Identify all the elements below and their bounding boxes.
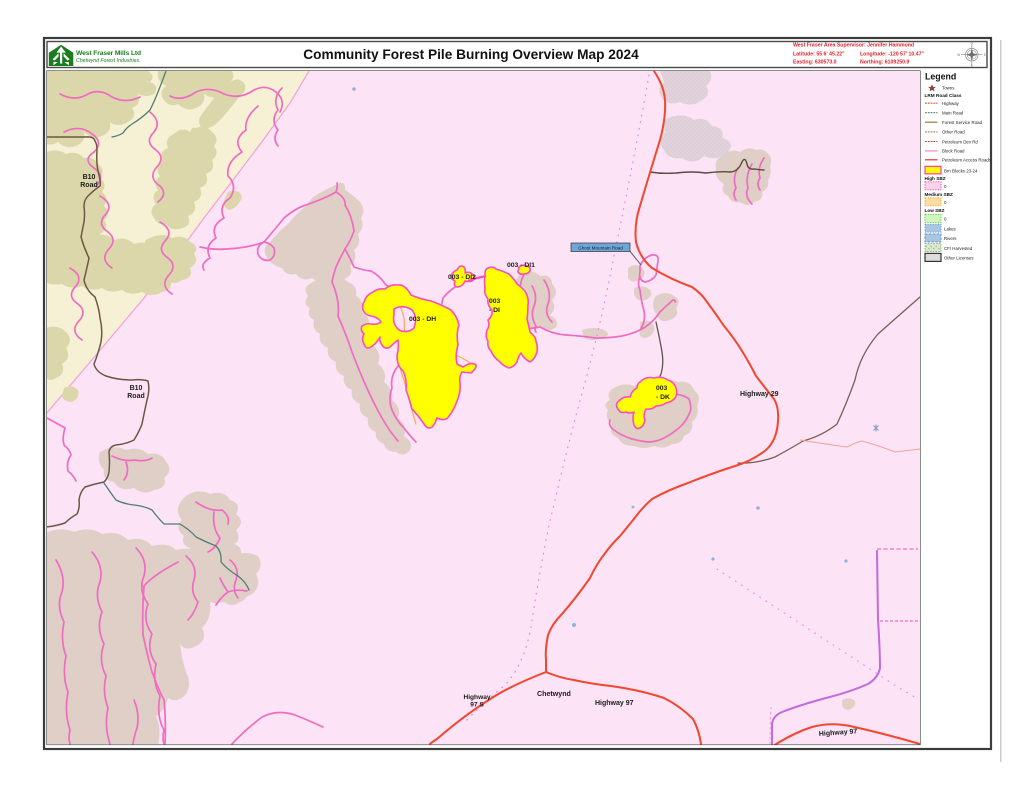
svg-text:Forest Service Road: Forest Service Road bbox=[942, 120, 983, 125]
svg-text:97 S: 97 S bbox=[470, 702, 484, 709]
svg-text:Highway: Highway bbox=[942, 101, 960, 106]
svg-text:Northing: 6109250.9: Northing: 6109250.9 bbox=[860, 59, 909, 65]
svg-text:Rivers: Rivers bbox=[944, 236, 957, 241]
svg-text:Chetwynd: Chetwynd bbox=[537, 690, 571, 698]
svg-text:003 - DI2: 003 - DI2 bbox=[448, 274, 476, 281]
svg-text:Main Road: Main Road bbox=[942, 111, 964, 116]
svg-text:Road: Road bbox=[80, 182, 98, 189]
svg-text:W: W bbox=[957, 53, 960, 57]
svg-text:Medium SBZ: Medium SBZ bbox=[925, 192, 954, 197]
svg-text:CFI Harvested: CFI Harvested bbox=[944, 246, 973, 251]
svg-text:003 - DH: 003 - DH bbox=[409, 316, 436, 323]
svg-text:S: S bbox=[971, 64, 973, 68]
svg-text:West Fraser Area Supervisor: J: West Fraser Area Supervisor: Jennifer Ha… bbox=[793, 42, 914, 48]
svg-text:High SBZ: High SBZ bbox=[925, 176, 946, 181]
svg-text:Easting: 630573.0: Easting: 630573.0 bbox=[793, 59, 837, 65]
svg-text:Chetwynd Forest Industries.: Chetwynd Forest Industries. bbox=[76, 58, 141, 64]
svg-text:Block Road: Block Road bbox=[942, 149, 965, 154]
svg-text:Legend: Legend bbox=[925, 72, 956, 82]
svg-text:Latitude: 55 6' 45.22": Latitude: 55 6' 45.22" bbox=[793, 51, 845, 57]
svg-text:Petroleum Access Roads: Petroleum Access Roads bbox=[942, 158, 992, 163]
svg-text:Road: Road bbox=[127, 393, 145, 400]
svg-text:Ghost Mountain Road: Ghost Mountain Road bbox=[578, 246, 623, 251]
svg-text:Towns: Towns bbox=[942, 86, 955, 91]
svg-text:B10: B10 bbox=[130, 385, 143, 392]
svg-text:Other Licenses: Other Licenses bbox=[944, 256, 974, 261]
svg-text:Highway: Highway bbox=[463, 694, 490, 701]
svg-text:- DI: - DI bbox=[489, 307, 500, 314]
svg-text:Highway 29: Highway 29 bbox=[740, 391, 779, 398]
svg-text:- DK: - DK bbox=[656, 394, 670, 401]
svg-text:003: 003 bbox=[656, 385, 668, 392]
svg-text:West Fraser Mills Ltd: West Fraser Mills Ltd bbox=[76, 50, 141, 57]
svg-text:B10: B10 bbox=[83, 174, 96, 181]
svg-text:Other Road: Other Road bbox=[942, 130, 965, 135]
svg-text:Longitude: -120 57' 10.47": Longitude: -120 57' 10.47" bbox=[860, 51, 924, 57]
svg-text:Low SBZ: Low SBZ bbox=[925, 208, 945, 213]
svg-text:Brn Blocks 23-24: Brn Blocks 23-24 bbox=[944, 168, 978, 173]
svg-text:Community Forest Pile Burning: Community Forest Pile Burning Overview M… bbox=[303, 47, 639, 62]
svg-text:Petroleum Dev Rd: Petroleum Dev Rd bbox=[942, 139, 978, 144]
svg-text:Lakes: Lakes bbox=[944, 226, 957, 231]
svg-text:Highway 97: Highway 97 bbox=[595, 700, 634, 707]
svg-text:003 - DI1: 003 - DI1 bbox=[507, 262, 535, 269]
svg-text:E: E bbox=[984, 53, 986, 57]
svg-text:LRM Road Class: LRM Road Class bbox=[925, 93, 962, 98]
svg-text:003: 003 bbox=[489, 298, 501, 305]
